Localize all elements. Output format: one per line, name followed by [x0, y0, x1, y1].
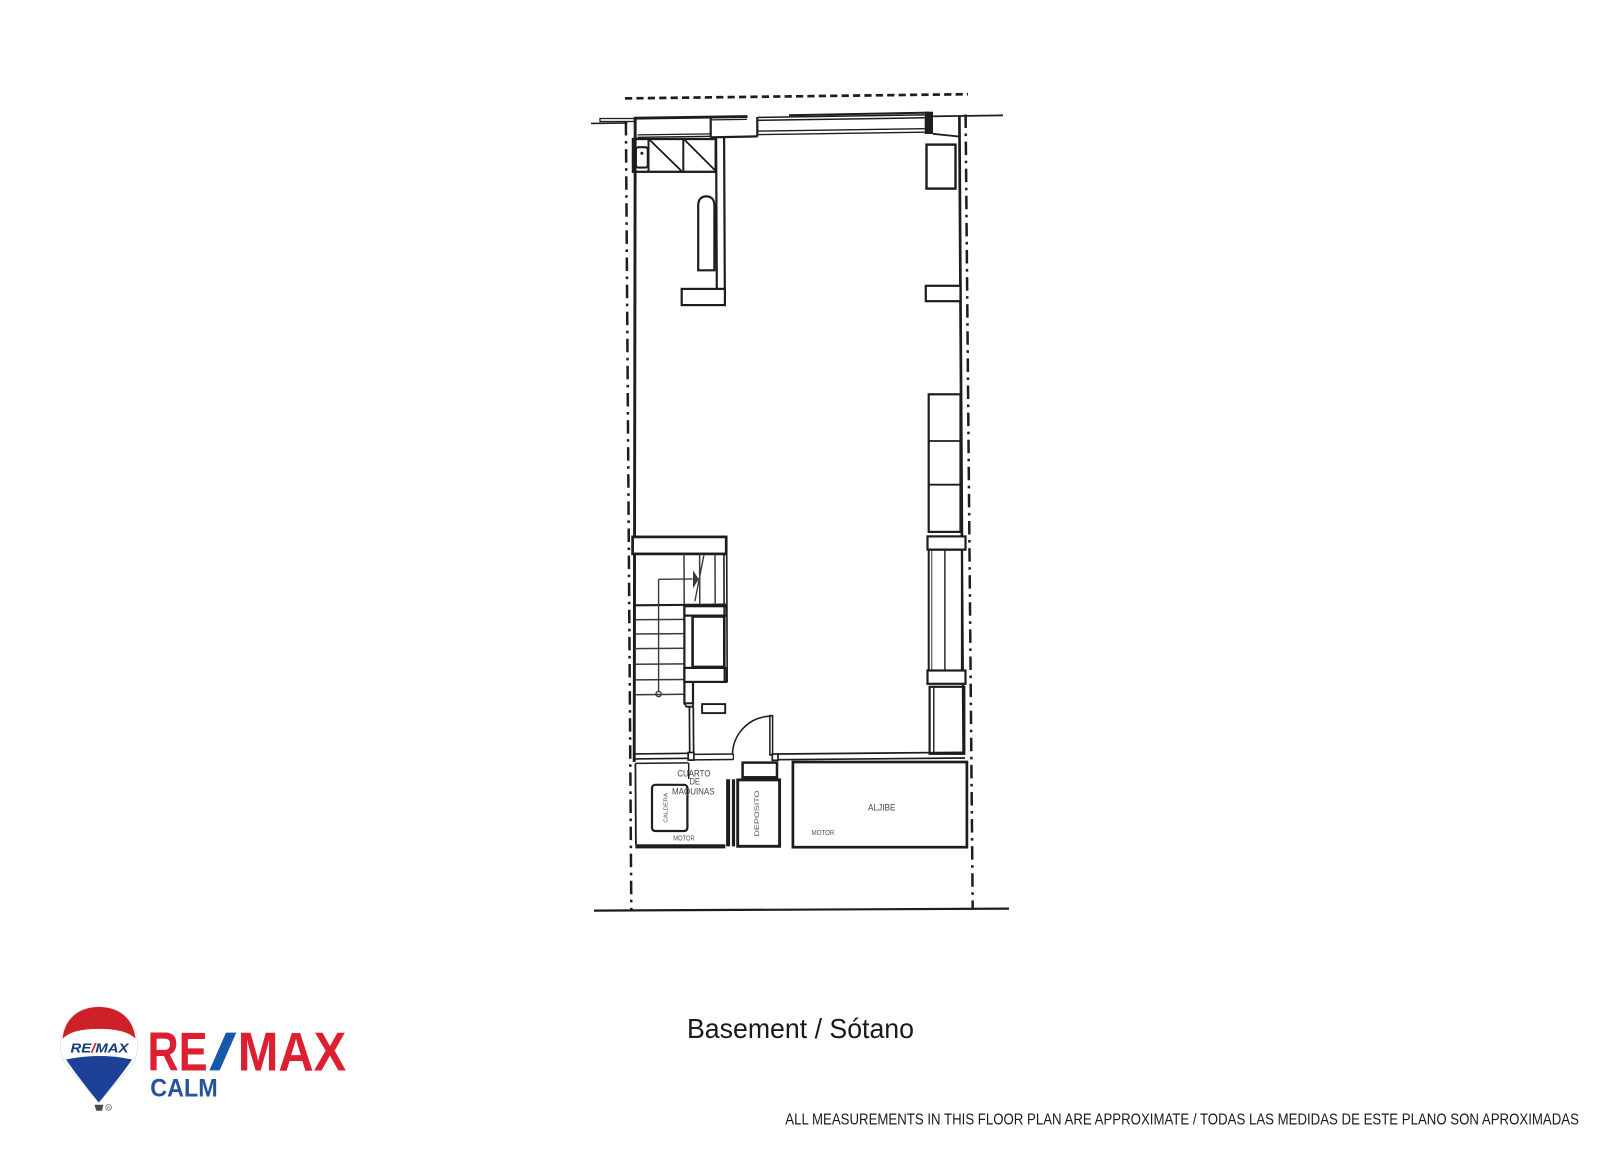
- svg-text:MAX: MAX: [238, 1021, 347, 1083]
- svg-text:CALM: CALM: [150, 1075, 217, 1103]
- svg-text:RE/MAX: RE/MAX: [71, 1040, 130, 1055]
- svg-text:Basement / Sótano: Basement / Sótano: [687, 1013, 914, 1044]
- svg-text:ALL MEASUREMENTS IN THIS FLOOR: ALL MEASUREMENTS IN THIS FLOOR PLAN ARE …: [785, 1112, 1579, 1129]
- svg-text:MOTOR: MOTOR: [812, 828, 835, 837]
- svg-text:MOTOR: MOTOR: [673, 834, 694, 843]
- svg-text:MAQUINAS: MAQUINAS: [672, 786, 715, 796]
- svg-text:DE: DE: [689, 777, 700, 787]
- svg-text:DEPOSITO: DEPOSITO: [755, 790, 761, 836]
- svg-text:ALJIBE: ALJIBE: [868, 803, 896, 814]
- svg-text:CALDERA: CALDERA: [664, 793, 670, 823]
- svg-text:RE: RE: [148, 1021, 208, 1083]
